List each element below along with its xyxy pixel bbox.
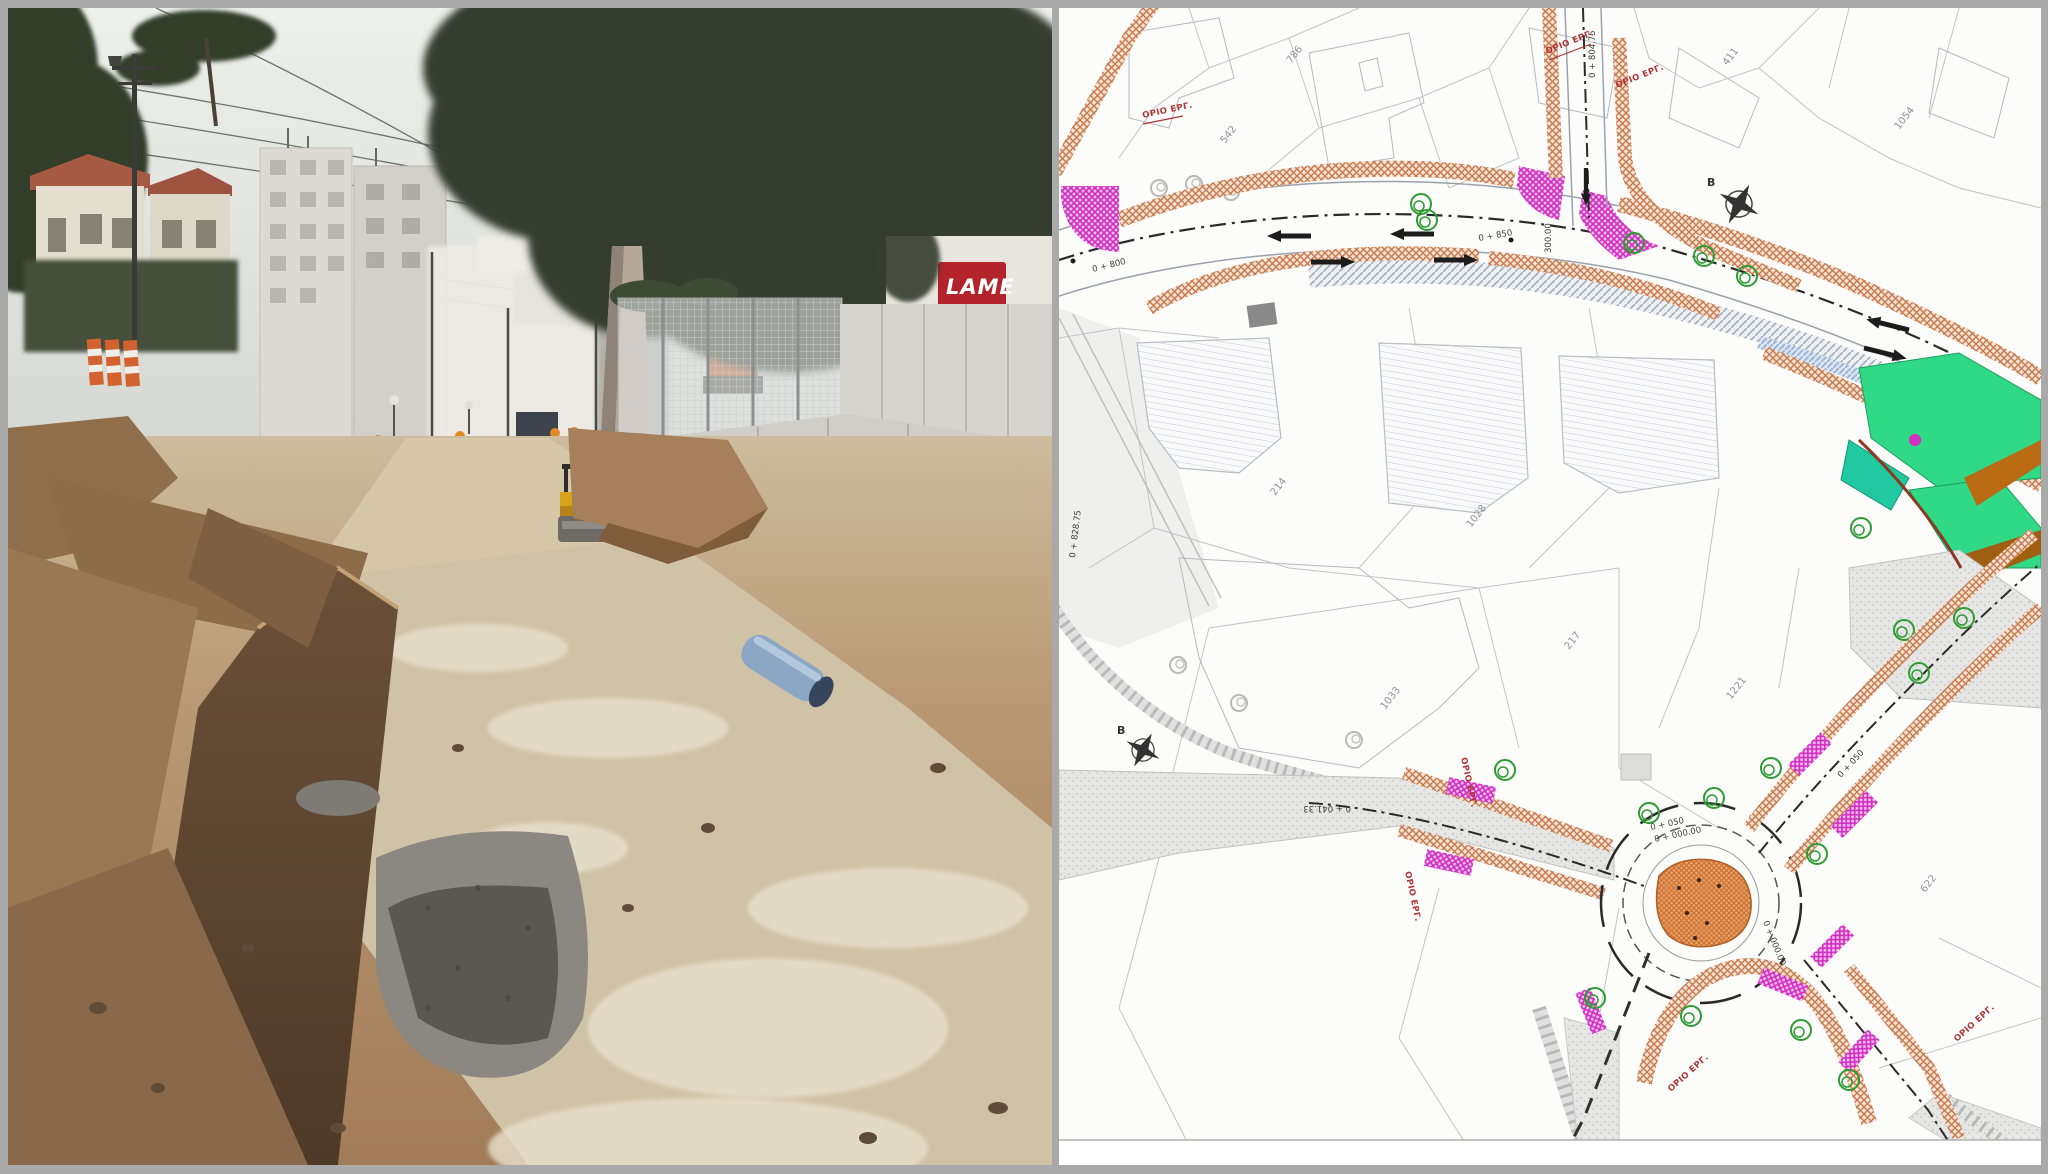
road-design-plan-panel: B B 786 542 411 1054 214 1028 217 1221 1… <box>1059 8 2041 1165</box>
construction-photo: LAME <box>8 8 1052 1165</box>
chainage-label: 0 + 041.33 <box>1303 803 1351 813</box>
composite-image: LAME <box>0 0 2048 1174</box>
sheet-margin <box>1059 1140 2041 1165</box>
shop-sign-text: LAME <box>946 275 1015 299</box>
road-design-plan: B B 786 542 411 1054 214 1028 217 1221 1… <box>1059 8 2041 1165</box>
construction-photo-panel: LAME <box>8 8 1052 1165</box>
panel-divider <box>1052 8 1059 1165</box>
chainage-label: 300.00 <box>1544 223 1554 253</box>
north-label-bottom: B <box>1117 724 1125 737</box>
north-label-top: B <box>1707 176 1715 189</box>
left-houses <box>24 154 238 352</box>
central-island <box>1657 859 1752 946</box>
shelter-structure <box>1247 302 1278 328</box>
junction-landscape <box>1841 353 2041 708</box>
